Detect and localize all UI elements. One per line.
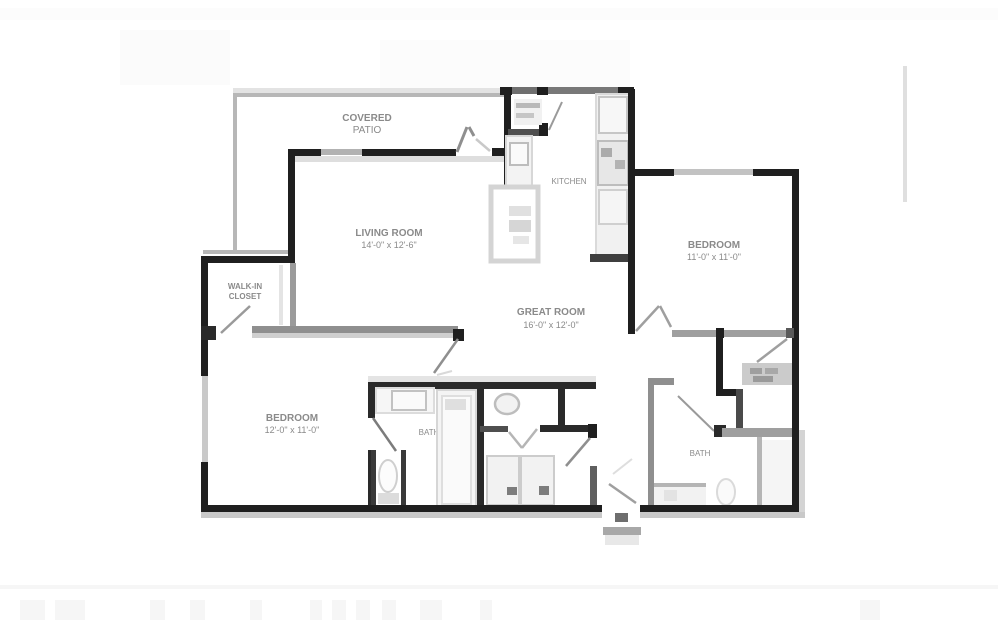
svg-text:WALK-IN: WALK-IN — [228, 282, 262, 291]
svg-text:GREAT ROOM: GREAT ROOM — [517, 307, 585, 318]
svg-text:11'-0" x 11'-0": 11'-0" x 11'-0" — [687, 252, 741, 262]
svg-text:COVERED: COVERED — [342, 113, 391, 124]
svg-text:CLOSET: CLOSET — [229, 292, 262, 301]
svg-text:BATH: BATH — [690, 449, 711, 458]
svg-text:KITCHEN: KITCHEN — [551, 177, 586, 186]
svg-text:PATIO: PATIO — [353, 125, 382, 136]
svg-text:BEDROOM: BEDROOM — [266, 413, 318, 424]
svg-text:16'-0" x 12'-0": 16'-0" x 12'-0" — [523, 320, 578, 330]
svg-text:BEDROOM: BEDROOM — [688, 240, 740, 251]
svg-text:14'-0" x 12'-6": 14'-0" x 12'-6" — [361, 240, 416, 250]
svg-text:LIVING ROOM: LIVING ROOM — [355, 228, 422, 239]
svg-text:12'-0" x 11'-0": 12'-0" x 11'-0" — [265, 425, 320, 435]
